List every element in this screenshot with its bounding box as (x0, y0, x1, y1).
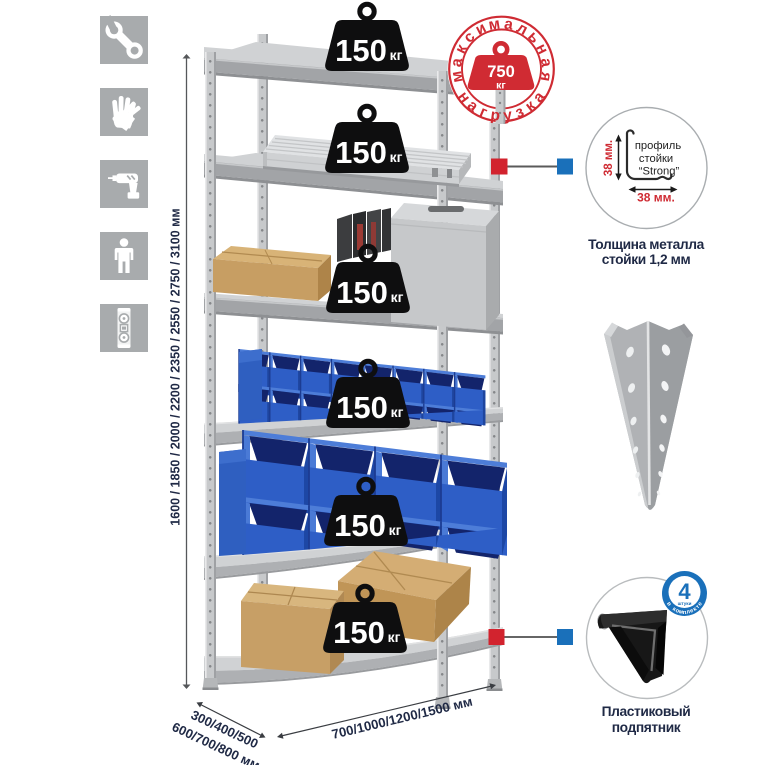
svg-text:1600 / 1850 / 2000 / 2200 / 23: 1600 / 1850 / 2000 / 2200 / 2350 / 2550 … (168, 208, 182, 525)
svg-text:“Strong”: “Strong” (639, 166, 680, 178)
svg-text:38 мм.: 38 мм. (637, 191, 675, 205)
svg-text:профиль: профиль (635, 140, 681, 152)
svg-text:стойки 1,2 мм: стойки 1,2 мм (602, 252, 691, 267)
svg-text:подпятник: подпятник (612, 720, 681, 735)
svg-text:750: 750 (487, 63, 515, 81)
svg-text:кг: кг (496, 80, 506, 92)
svg-text:Толщина металла: Толщина металла (588, 237, 704, 252)
svg-text:Пластиковый: Пластиковый (602, 704, 691, 719)
svg-text:стойки: стойки (639, 153, 673, 165)
svg-text:штуки: штуки (678, 601, 692, 606)
svg-text:38 мм.: 38 мм. (603, 140, 615, 176)
